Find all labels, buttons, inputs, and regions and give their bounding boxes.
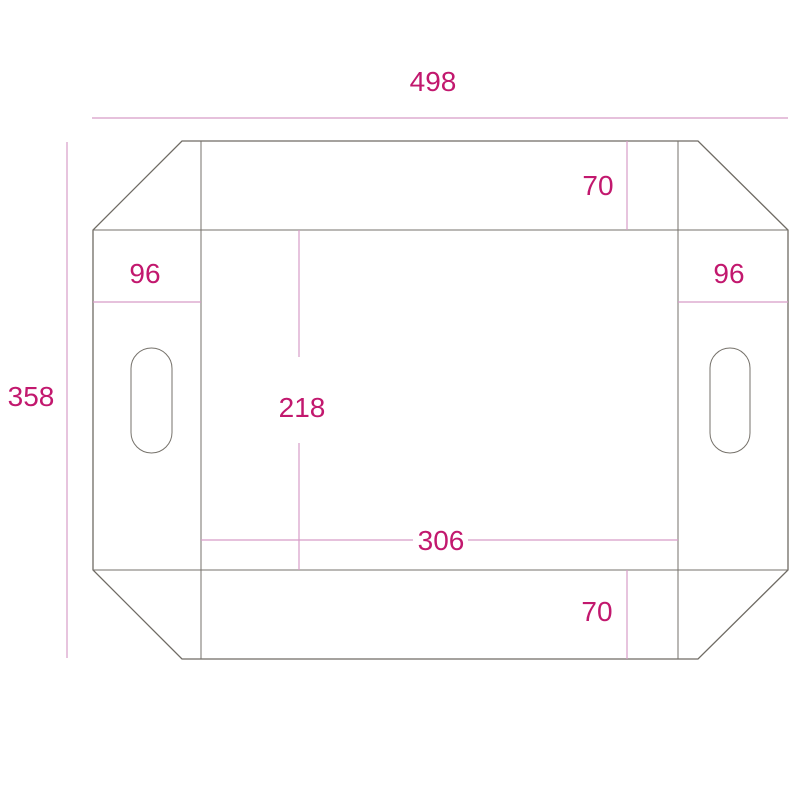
dieline-svg: 498 358 70 96 96 218 306 70 <box>0 0 800 800</box>
dim-label-left-side-width: 96 <box>129 258 160 289</box>
dim-label-top-flap-depth: 70 <box>582 170 613 201</box>
dim-label-overall-width: 498 <box>410 66 457 97</box>
dim-label-right-side-width: 96 <box>713 258 744 289</box>
outer-cut-outline <box>93 141 788 659</box>
dim-label-base-width: 306 <box>418 525 465 556</box>
dim-label-bottom-flap-depth: 70 <box>581 596 612 627</box>
dieline-drawing: 498 358 70 96 96 218 306 70 <box>0 0 800 800</box>
handle-cutout-right <box>710 348 750 453</box>
dim-label-overall-height: 358 <box>8 381 55 412</box>
handle-cutout-left <box>131 348 172 453</box>
dim-label-base-height: 218 <box>279 392 326 423</box>
